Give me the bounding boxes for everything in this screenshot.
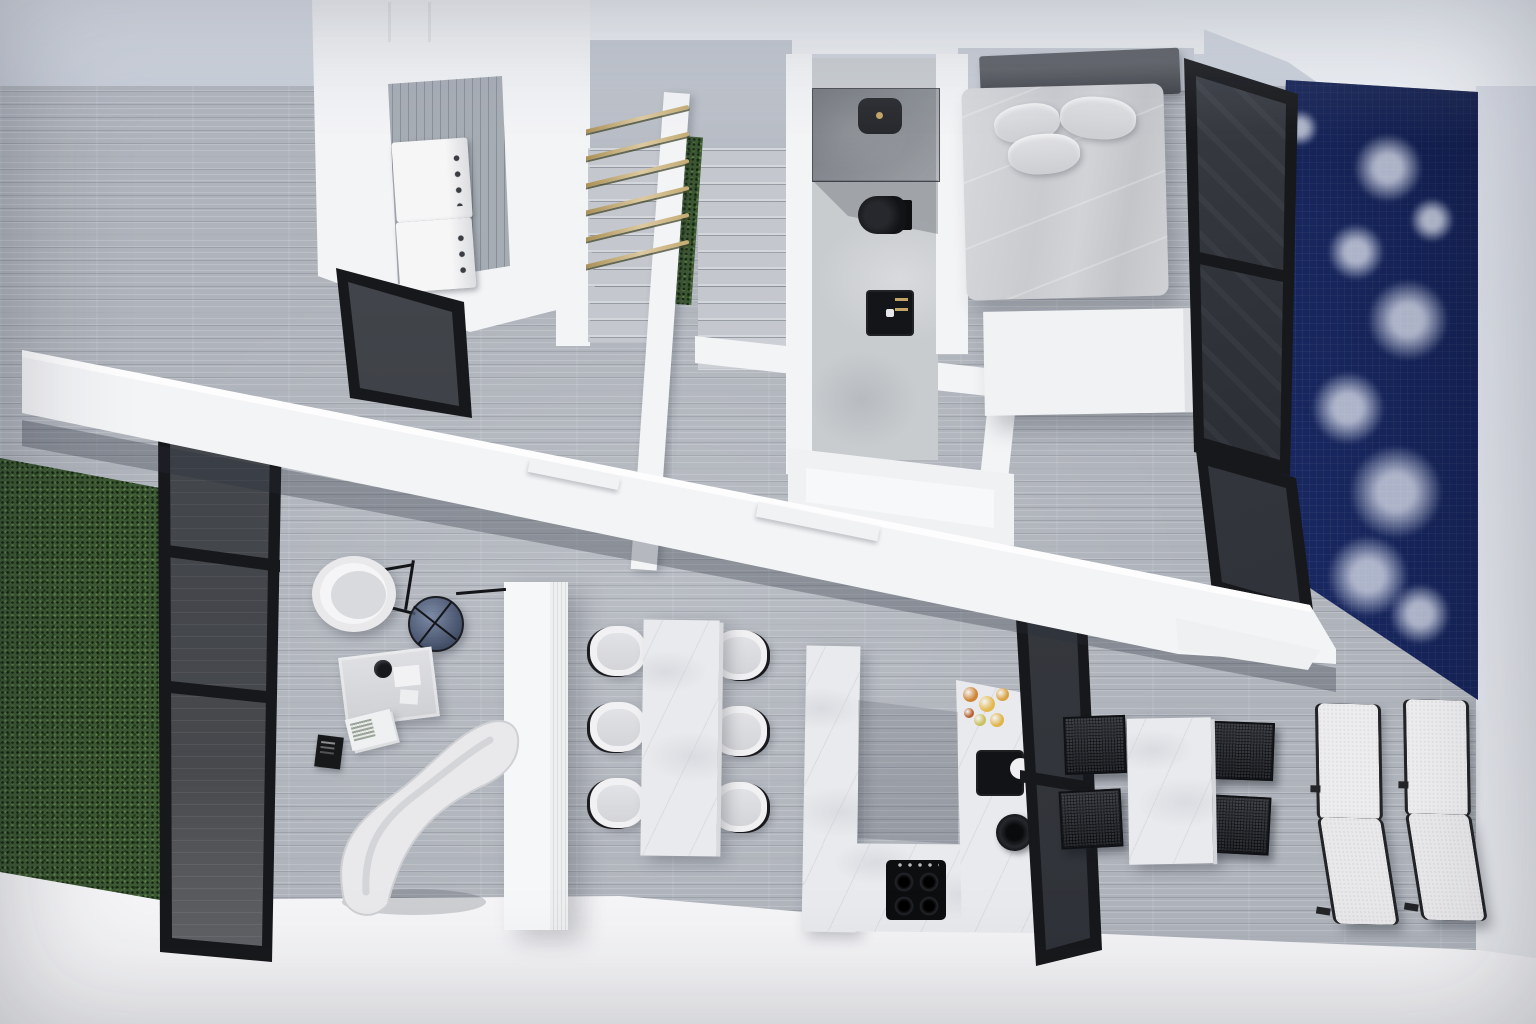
chaise-lounge bbox=[306, 676, 526, 916]
right-wall-band bbox=[1476, 86, 1536, 1024]
washer-unit bbox=[391, 137, 472, 222]
fruit-item bbox=[996, 688, 1009, 701]
railing-post bbox=[579, 179, 586, 192]
sun-lounger bbox=[1398, 693, 1482, 926]
sun-lounger bbox=[1310, 697, 1394, 930]
pool-foam-patch bbox=[1328, 224, 1384, 280]
stair-upper-wall bbox=[588, 40, 792, 152]
dining-chair bbox=[590, 702, 646, 752]
railing-post bbox=[579, 152, 586, 165]
dining-chair bbox=[590, 778, 646, 828]
cooktop-burner bbox=[894, 896, 914, 916]
lounger-leg bbox=[1404, 902, 1419, 911]
fruit-item bbox=[963, 687, 978, 702]
dining-chair bbox=[590, 626, 646, 676]
fruit-item bbox=[974, 714, 986, 726]
armchair bbox=[312, 556, 396, 632]
dryer-unit bbox=[396, 217, 477, 292]
lounger-seat bbox=[1320, 817, 1397, 924]
outdoor-dining-table bbox=[1127, 717, 1214, 864]
lounger-leg bbox=[1316, 906, 1331, 915]
cooktop-burner bbox=[894, 872, 914, 892]
lounger-leg bbox=[1310, 785, 1320, 792]
lounger-backrest bbox=[1406, 699, 1468, 816]
gas-cooktop bbox=[886, 860, 946, 920]
bathroom-wall-left bbox=[786, 54, 812, 474]
railing-post bbox=[579, 233, 586, 246]
stair-flight-lower bbox=[698, 148, 792, 370]
railing-post bbox=[579, 206, 586, 219]
round-glass-side-table bbox=[408, 596, 464, 652]
lounger-seat bbox=[1408, 813, 1485, 920]
apartment-topdown-render bbox=[0, 0, 1536, 1024]
outdoor-mesh-chair bbox=[1059, 788, 1124, 849]
stair-side-wall bbox=[556, 0, 590, 346]
cooktop-burner bbox=[919, 896, 939, 916]
cooktop-burner bbox=[919, 872, 939, 892]
ceiling-seam bbox=[388, 2, 391, 42]
railing-post bbox=[579, 260, 586, 273]
outdoor-mesh-chair bbox=[1063, 715, 1127, 775]
pool-foam-patch bbox=[1410, 198, 1454, 242]
lounger-leg bbox=[1398, 781, 1408, 788]
ceiling-seam bbox=[428, 2, 431, 42]
fruit-item bbox=[990, 713, 1004, 727]
shower-tray bbox=[858, 98, 902, 134]
fruit-item bbox=[979, 696, 995, 712]
lounger-backrest bbox=[1318, 703, 1380, 820]
railing-post bbox=[579, 125, 586, 138]
pool-foam-patch bbox=[1368, 280, 1448, 360]
pool-foam-patch bbox=[1390, 584, 1450, 644]
pool-foam-patch bbox=[1350, 446, 1442, 538]
pool-foam-patch bbox=[1354, 134, 1422, 202]
outdoor-mesh-chair bbox=[1211, 721, 1275, 781]
wardrobe-unit bbox=[983, 308, 1195, 416]
fruit-item bbox=[964, 708, 974, 718]
cooking-pot bbox=[996, 814, 1033, 851]
pool-foam-patch bbox=[1312, 372, 1384, 444]
dining-table bbox=[640, 619, 719, 856]
black-toilet bbox=[858, 196, 906, 234]
black-sink-vanity bbox=[866, 290, 914, 336]
